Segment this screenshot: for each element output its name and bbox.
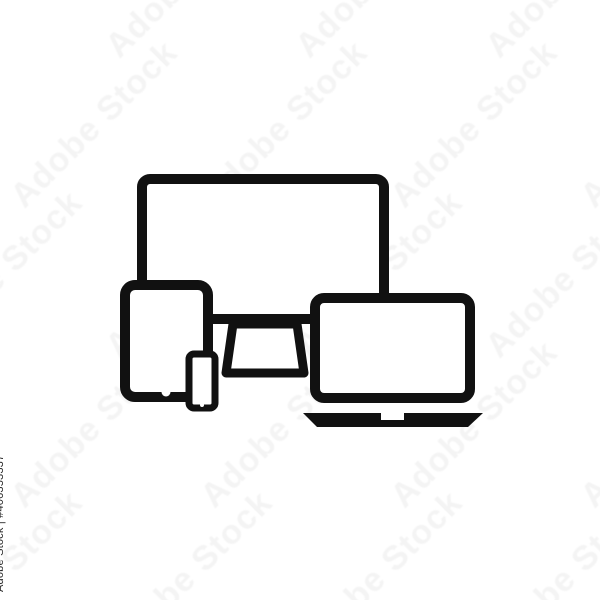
smartphone-body bbox=[189, 354, 215, 408]
laptop-screen bbox=[315, 298, 470, 398]
stock-image-canvas: Adobe StockAdobe StockAdobe StockAdobe S… bbox=[0, 0, 600, 600]
tablet-home-button bbox=[162, 388, 171, 397]
smartphone-home-button bbox=[200, 403, 204, 407]
stock-attribution-text: Adobe Stock | #406353337 bbox=[0, 455, 6, 592]
laptop-icon bbox=[303, 298, 483, 427]
devices-icon bbox=[0, 0, 600, 600]
laptop-base bbox=[303, 413, 483, 427]
smartphone-icon bbox=[189, 354, 215, 408]
monitor-stand bbox=[226, 324, 304, 373]
